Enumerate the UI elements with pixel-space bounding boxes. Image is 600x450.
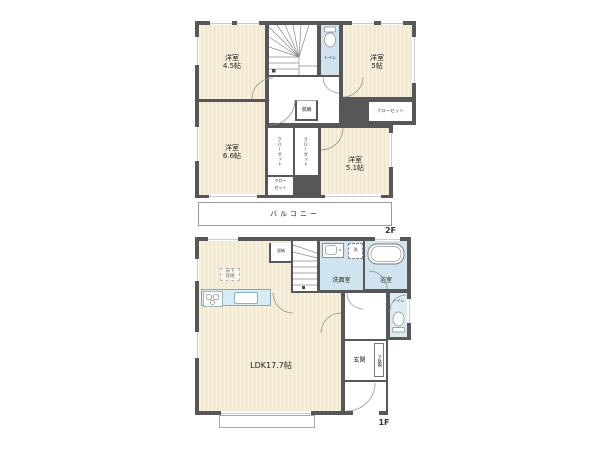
balcony: バルコニー — [198, 202, 392, 226]
window — [195, 259, 199, 281]
entrance-opening — [353, 411, 379, 415]
washing-machine-icon: 洗 — [348, 243, 363, 259]
staircase-1f — [293, 241, 317, 291]
window — [195, 127, 199, 161]
floor-label-1f: 1F — [373, 418, 395, 427]
underfloor-line2: 収納 — [221, 274, 239, 279]
room-5-1-label: 洋室 5.1帖 — [335, 156, 375, 173]
window — [221, 411, 311, 415]
closet-label-5jo: クローゼット — [369, 109, 412, 114]
stairs-icon — [293, 241, 317, 291]
room-5-label: 洋室 5帖 — [357, 54, 397, 71]
storage-2f: 収納 — [295, 100, 318, 121]
closet-label-left: クローゼット — [277, 132, 282, 172]
washroom-label: 洗面室 — [320, 277, 363, 284]
toilet-room-2f: トイレ — [321, 25, 339, 75]
closet-label-right: クローゼット — [303, 132, 308, 172]
stair-newel-marker — [302, 286, 305, 289]
entrance-genkan: 玄関 下駄箱 — [345, 341, 386, 380]
toilet-label-1f: トイレ — [390, 299, 407, 304]
window — [195, 332, 199, 358]
toilet-icon — [390, 308, 407, 336]
window — [209, 194, 257, 198]
floor-label-2f: 2F — [376, 226, 396, 235]
window — [237, 21, 259, 25]
window — [325, 194, 381, 198]
window — [195, 37, 199, 65]
terrace-deck — [219, 415, 315, 428]
shoe-cabinet: 下駄箱 — [374, 343, 384, 377]
room-4-5-label: 洋室 4.5帖 — [212, 54, 252, 71]
vanity-sink-icon — [322, 243, 346, 261]
shoe-cabinet-label: 下駄箱 — [377, 347, 382, 375]
window — [375, 237, 400, 241]
toilet-label-2f: トイレ — [321, 56, 339, 61]
window — [352, 21, 374, 25]
floorplan-1f: 収納 洗 洗面室 — [195, 237, 416, 437]
entrance-label: 玄関 — [345, 357, 374, 364]
closet-5jo: クローゼット — [367, 100, 412, 121]
closet-small-line1: クロー — [268, 179, 293, 184]
staircase-2f — [269, 25, 317, 75]
storage-label-1f: 収納 — [271, 249, 291, 254]
window — [208, 237, 238, 241]
storage-1f: 収納 — [269, 243, 291, 263]
room-ldk-east — [291, 293, 341, 411]
stove-icon — [203, 291, 223, 307]
kitchen-counter — [201, 289, 271, 306]
closet-tall-left: クローゼット — [268, 128, 293, 175]
entrance-porch — [345, 382, 386, 411]
closet-tall-right: クローゼット — [295, 128, 318, 175]
floorplan-2f: トイレ 収納 クローゼット クローゼット クローゼット クロー ゼット バルコニ… — [195, 21, 416, 239]
window — [389, 133, 393, 167]
floorplan-canvas: トイレ 収納 クローゼット クローゼット クローゼット クロー ゼット バルコニ… — [0, 0, 600, 450]
window — [210, 21, 232, 25]
window — [412, 37, 416, 83]
room-6-6-label: 洋室 6.6帖 — [212, 144, 252, 161]
window — [407, 299, 411, 323]
bathroom: 浴室 — [365, 241, 407, 289]
room-ldk-main — [199, 241, 291, 411]
underfloor-storage-note: 床下 収納 — [220, 268, 240, 281]
ldk-label: LDK17.7帖 — [225, 361, 317, 371]
washer-label: 洗 — [349, 248, 362, 253]
bathtub-icon — [365, 243, 407, 269]
toilet-room-1f: トイレ — [390, 293, 407, 337]
toilet-icon — [321, 26, 339, 52]
stairs-icon — [269, 25, 317, 75]
stair-newel-marker — [272, 69, 276, 73]
window — [381, 21, 403, 25]
closet-small-line2: ゼット — [268, 186, 293, 191]
storage-label-2f: 収納 — [297, 107, 316, 113]
kitchen-sink-icon — [234, 292, 258, 304]
washroom: 洗 洗面室 — [320, 241, 363, 290]
hall-1f — [345, 293, 386, 339]
closet-small: クロー ゼット — [268, 177, 293, 195]
bathroom-label: 浴室 — [365, 277, 407, 284]
balcony-label: バルコニー — [199, 210, 391, 218]
